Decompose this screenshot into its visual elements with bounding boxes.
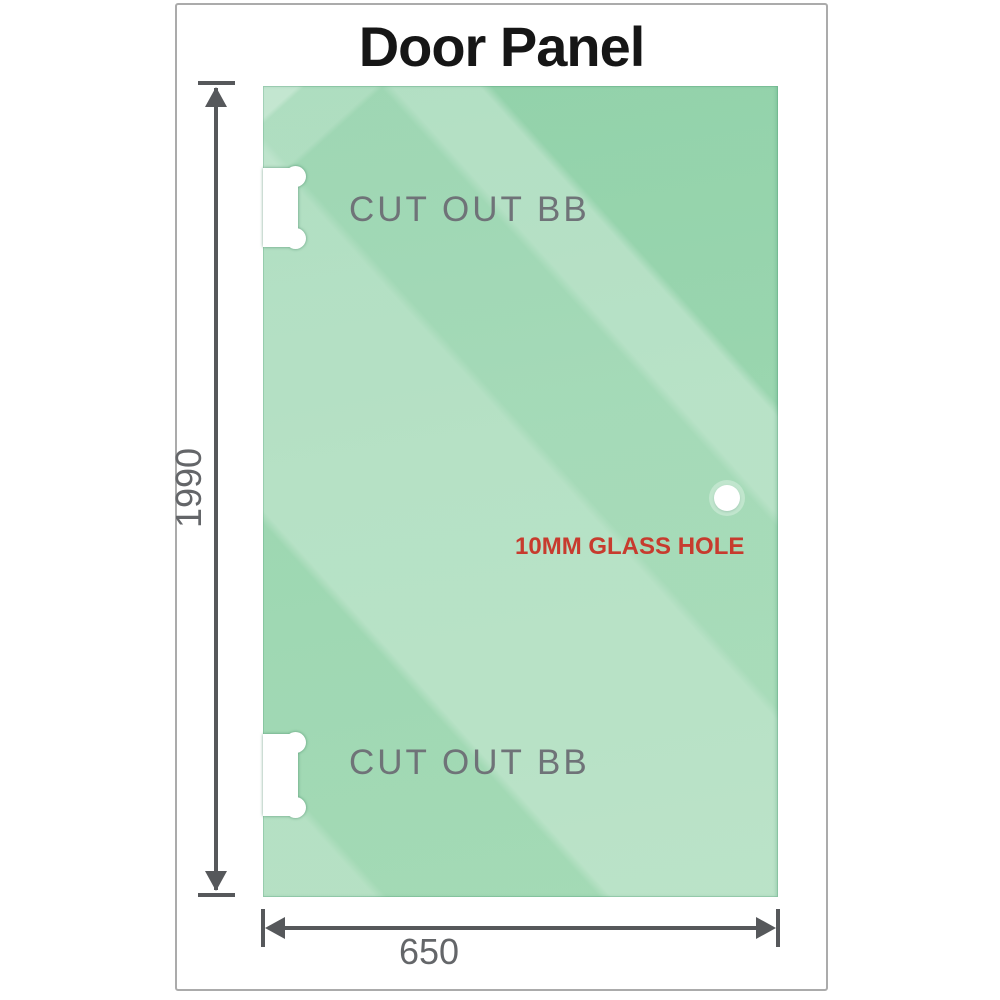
width-dimension-value: 650 [399,934,459,970]
cutout-label-top: CUT OUT BB [349,192,590,227]
height-dimension-line [214,88,218,890]
height-dimension-value: 1990 [171,448,207,528]
arrow-right-icon [756,917,776,939]
height-dimension-top-tick [198,81,235,85]
glass-hole [714,485,740,511]
hinge-cutout-bottom [263,734,298,816]
page-title: Door Panel [175,16,828,78]
width-dimension-right-tick [776,909,780,947]
arrow-up-icon [205,87,227,107]
glass-hole-label: 10MM GLASS HOLE [515,535,744,559]
hinge-cutout-top [263,168,298,247]
door-panel-diagram: Door Panel CUT OUT BB CUT OUT BB 10MM GL… [0,0,1000,1000]
width-dimension-line [272,926,769,930]
height-dimension-bottom-tick [198,893,235,897]
arrow-left-icon [265,917,285,939]
arrow-down-icon [205,871,227,891]
cutout-label-bottom: CUT OUT BB [349,745,590,780]
